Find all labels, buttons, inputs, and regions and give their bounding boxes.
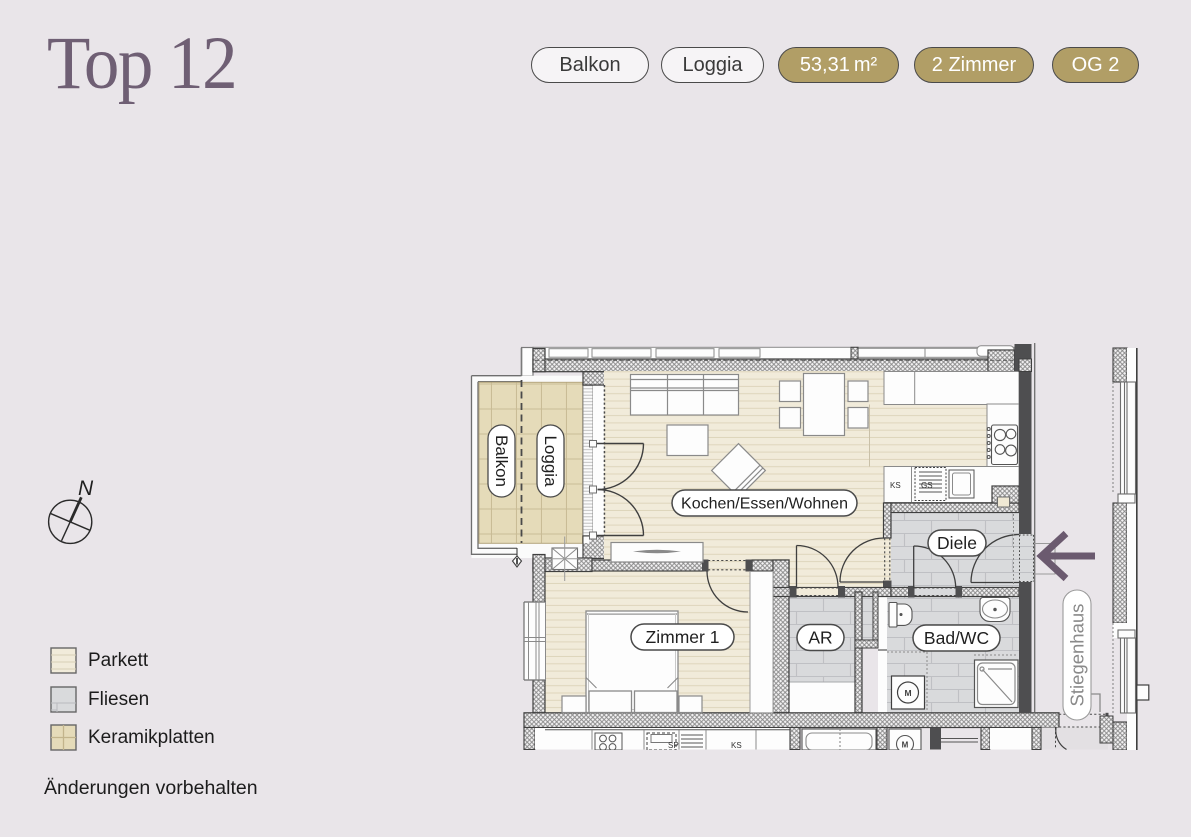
svg-text:Bad/WC: Bad/WC — [924, 628, 989, 648]
svg-text:SP: SP — [668, 741, 679, 750]
svg-text:Stiegenhaus: Stiegenhaus — [1067, 604, 1088, 707]
svg-text:AR: AR — [808, 628, 832, 648]
svg-text:N: N — [78, 477, 94, 500]
svg-text:Balkon: Balkon — [492, 435, 511, 487]
svg-text:KS: KS — [731, 741, 742, 750]
svg-text:Diele: Diele — [937, 533, 977, 553]
svg-text:Loggia: Loggia — [541, 435, 560, 487]
svg-text:Zimmer 1: Zimmer 1 — [646, 627, 720, 647]
svg-text:GS: GS — [921, 481, 933, 490]
svg-text:M: M — [904, 688, 911, 698]
svg-text:Kochen/Essen/Wohnen: Kochen/Essen/Wohnen — [681, 496, 848, 513]
svg-text:KS: KS — [890, 481, 901, 490]
svg-text:M: M — [902, 741, 909, 750]
